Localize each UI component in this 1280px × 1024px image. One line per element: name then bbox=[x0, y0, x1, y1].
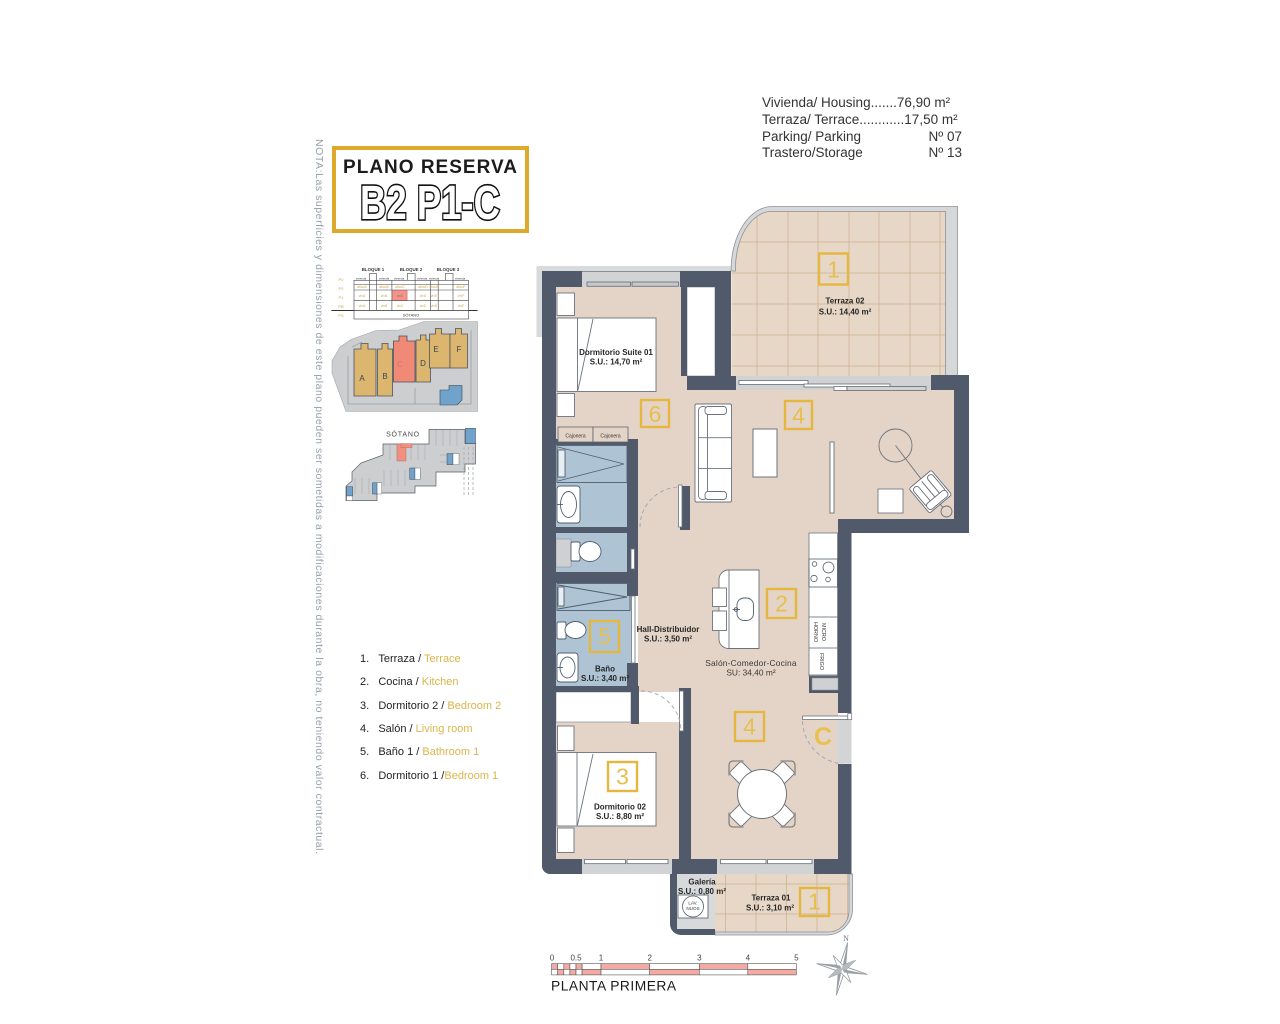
svg-text:N: N bbox=[843, 934, 849, 943]
svg-text:MICRO: MICRO bbox=[820, 623, 826, 641]
svg-text:B: B bbox=[382, 372, 387, 381]
svg-text:S.U.: 8,80 m²: S.U.: 8,80 m² bbox=[596, 812, 644, 821]
svg-text:aticoE: aticoE bbox=[429, 285, 439, 289]
svg-text:vivC: vivC bbox=[397, 304, 404, 308]
svg-text:vivienda: vivienda bbox=[356, 276, 367, 280]
svg-text:vivienda: vivienda bbox=[379, 276, 390, 280]
svg-text:Baño: Baño bbox=[595, 665, 615, 674]
svg-text:Terraza 01: Terraza 01 bbox=[752, 894, 792, 903]
svg-text:4: 4 bbox=[746, 954, 751, 963]
svg-text:4: 4 bbox=[743, 714, 756, 740]
svg-text:Dormitorio Suite 01: Dormitorio Suite 01 bbox=[579, 348, 653, 357]
svg-text:BLOQUE 1: BLOQUE 1 bbox=[362, 267, 385, 272]
svg-text:6: 6 bbox=[649, 401, 662, 427]
svg-text:2: 2 bbox=[775, 591, 788, 617]
svg-text:S.U.: 14,70 m²: S.U.: 14,70 m² bbox=[590, 358, 643, 367]
svg-text:0.5: 0.5 bbox=[570, 954, 582, 963]
svg-text:1: 1 bbox=[808, 889, 821, 915]
svg-text:PLANTA PRIMERA: PLANTA PRIMERA bbox=[551, 979, 677, 994]
svg-text:S.U.: 3,10 m²: S.U.: 3,10 m² bbox=[746, 904, 794, 913]
svg-text:aticoF: aticoF bbox=[456, 285, 465, 289]
svg-text:vivD: vivD bbox=[420, 294, 427, 298]
svg-text:vivF: vivF bbox=[458, 304, 464, 308]
svg-text:NUOS: NUOS bbox=[686, 906, 699, 911]
svg-text:Galería: Galería bbox=[688, 878, 716, 887]
svg-text:FRIGO: FRIGO bbox=[818, 653, 824, 670]
svg-text:vivE: vivE bbox=[431, 294, 438, 298]
svg-text:vivienda: vivienda bbox=[429, 276, 440, 280]
svg-text:P2: P2 bbox=[339, 286, 345, 291]
svg-text:SÓTANO: SÓTANO bbox=[386, 430, 420, 439]
svg-text:1: 1 bbox=[827, 257, 840, 283]
svg-text:vivA: vivA bbox=[359, 294, 366, 298]
svg-text:Hall-Distribuidor: Hall-Distribuidor bbox=[637, 625, 700, 634]
svg-text:5: 5 bbox=[598, 624, 611, 650]
svg-text:vivD: vivD bbox=[420, 304, 427, 308]
svg-text:E: E bbox=[433, 345, 438, 354]
svg-text:3: 3 bbox=[697, 954, 702, 963]
svg-text:0: 0 bbox=[550, 954, 555, 963]
svg-text:C: C bbox=[397, 360, 403, 369]
svg-text:D: D bbox=[420, 359, 426, 368]
svg-text:BLOQUE 2: BLOQUE 2 bbox=[400, 267, 423, 272]
svg-text:5: 5 bbox=[794, 954, 799, 963]
svg-text:3: 3 bbox=[616, 764, 629, 790]
svg-text:BLOQUE 3: BLOQUE 3 bbox=[437, 267, 460, 272]
svg-text:vivB: vivB bbox=[381, 294, 388, 298]
svg-text:Cajonera: Cajonera bbox=[565, 434, 586, 440]
svg-text:aticoB: aticoB bbox=[379, 285, 389, 289]
svg-text:HORNO: HORNO bbox=[812, 622, 818, 642]
svg-text:vivienda: vivienda bbox=[417, 276, 428, 280]
svg-text:Dormitorio 02: Dormitorio 02 bbox=[594, 803, 647, 812]
svg-text:vivE: vivE bbox=[431, 304, 438, 308]
svg-text:aticoA: aticoA bbox=[357, 285, 367, 289]
svg-text:vivB: vivB bbox=[381, 304, 388, 308]
svg-text:C: C bbox=[814, 723, 832, 751]
svg-text:SU: 34,40 m²: SU: 34,40 m² bbox=[726, 668, 776, 678]
svg-text:Cajonera: Cajonera bbox=[600, 434, 621, 440]
svg-text:vivienda: vivienda bbox=[455, 276, 466, 280]
svg-text:S.U.: 3,40 m²: S.U.: 3,40 m² bbox=[581, 674, 629, 683]
svg-text:P2: P2 bbox=[339, 277, 345, 282]
svg-text:SÓTANO: SÓTANO bbox=[403, 313, 420, 318]
svg-text:aticoD: aticoD bbox=[418, 285, 428, 289]
svg-text:LAV.: LAV. bbox=[688, 901, 697, 906]
svg-text:Terraza 02: Terraza 02 bbox=[826, 297, 866, 306]
svg-text:F: F bbox=[457, 345, 462, 354]
svg-text:S.U.: 0,80 m²: S.U.: 0,80 m² bbox=[678, 887, 726, 896]
svg-text:4: 4 bbox=[792, 403, 805, 429]
svg-text:S.U.: 3,50 m²: S.U.: 3,50 m² bbox=[644, 635, 692, 644]
svg-text:A: A bbox=[359, 374, 365, 383]
svg-text:vivF: vivF bbox=[458, 294, 464, 298]
svg-text:S.U.: 14,40 m²: S.U.: 14,40 m² bbox=[819, 308, 872, 317]
svg-text:2: 2 bbox=[647, 954, 652, 963]
svg-text:1: 1 bbox=[599, 954, 604, 963]
svg-text:PS: PS bbox=[338, 313, 344, 318]
svg-text:P1: P1 bbox=[339, 295, 345, 300]
svg-text:vivienda: vivienda bbox=[394, 276, 405, 280]
svg-text:aticoC: aticoC bbox=[395, 285, 405, 289]
svg-text:Salón-Comedor-Cocina: Salón-Comedor-Cocina bbox=[705, 658, 797, 668]
svg-text:vivA: vivA bbox=[359, 304, 366, 308]
svg-text:vivC: vivC bbox=[397, 294, 404, 298]
svg-text:PB: PB bbox=[338, 304, 344, 309]
